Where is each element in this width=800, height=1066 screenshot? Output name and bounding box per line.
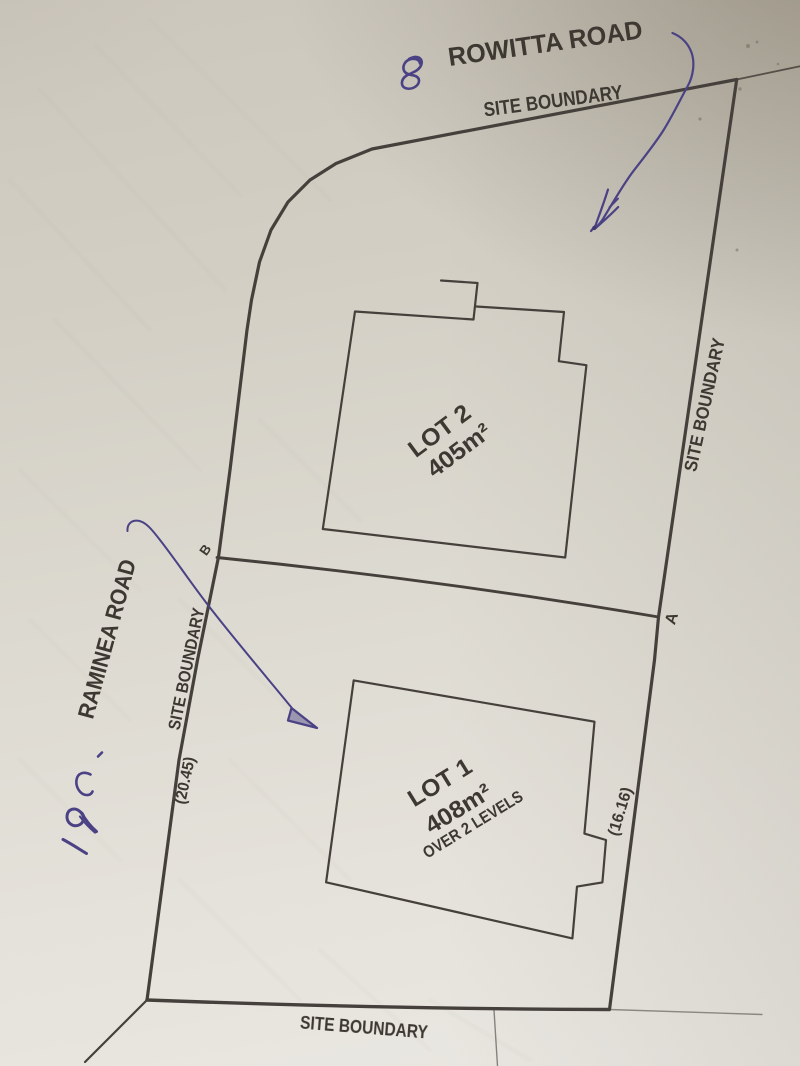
svg-text:SITE BOUNDARY: SITE BOUNDARY	[165, 606, 209, 732]
svg-text:A: A	[662, 610, 682, 627]
svg-text:ROWITTA ROAD: ROWITTA ROAD	[446, 14, 644, 72]
svg-text:(20.45): (20.45)	[172, 755, 199, 805]
svg-text:B: B	[196, 541, 214, 558]
svg-text:SITE BOUNDARY: SITE BOUNDARY	[680, 336, 729, 473]
svg-text:SITE BOUNDARY: SITE BOUNDARY	[299, 1012, 429, 1043]
